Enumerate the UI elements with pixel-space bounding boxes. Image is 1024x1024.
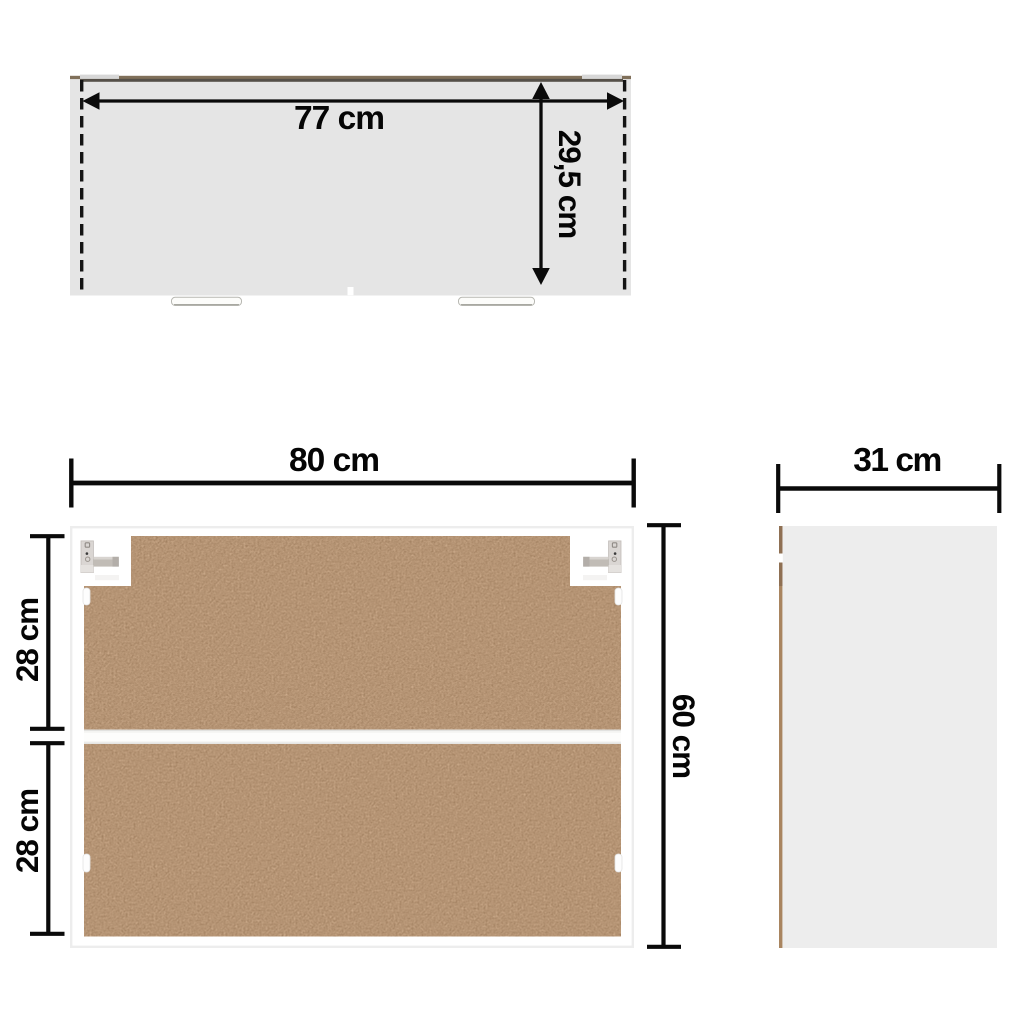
svg-text:80 cm: 80 cm <box>289 442 379 479</box>
svg-text:28 cm: 28 cm <box>9 598 45 682</box>
svg-text:77 cm: 77 cm <box>294 100 384 137</box>
svg-text:31 cm: 31 cm <box>853 442 941 479</box>
svg-text:29,5 cm: 29,5 cm <box>552 130 588 239</box>
svg-text:60 cm: 60 cm <box>666 694 702 778</box>
svg-text:28 cm: 28 cm <box>9 789 45 873</box>
